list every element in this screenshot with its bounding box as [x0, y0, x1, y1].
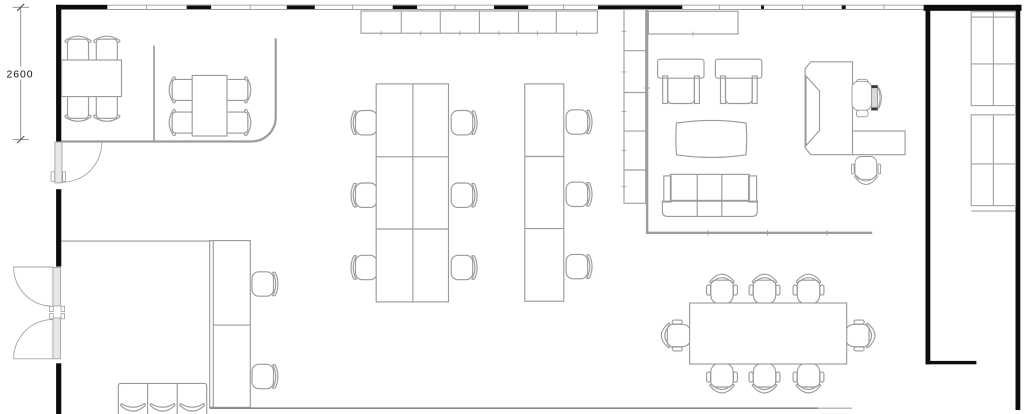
svg-text:2600: 2600	[7, 69, 34, 81]
